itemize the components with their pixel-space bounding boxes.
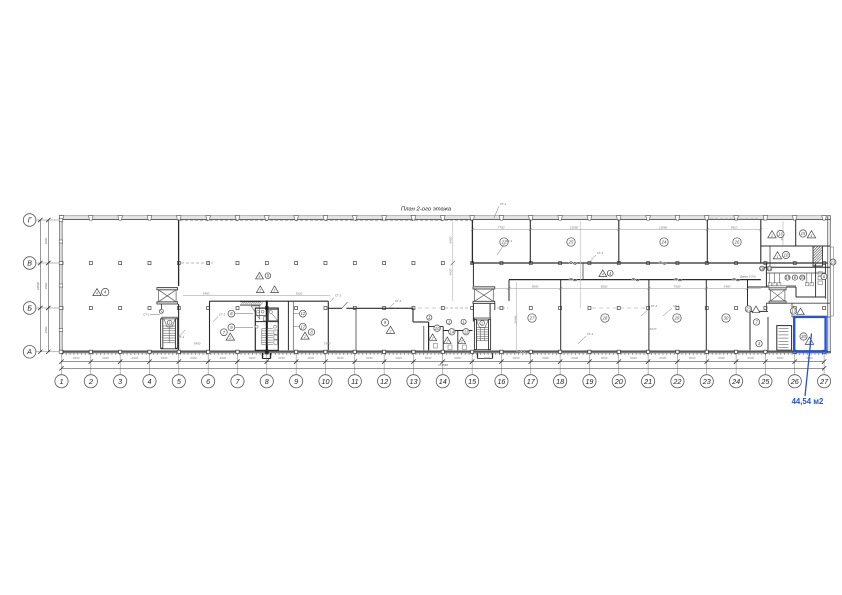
svg-text:9: 9 bbox=[294, 377, 298, 386]
svg-text:17: 17 bbox=[300, 324, 305, 329]
svg-text:6030: 6030 bbox=[718, 356, 725, 360]
svg-text:30: 30 bbox=[801, 334, 806, 339]
svg-text:20: 20 bbox=[614, 377, 623, 386]
svg-text:2: 2 bbox=[273, 289, 276, 293]
svg-text:4: 4 bbox=[602, 273, 604, 277]
svg-text:9270: 9270 bbox=[650, 327, 657, 331]
svg-text:15: 15 bbox=[801, 231, 806, 236]
svg-text:4: 4 bbox=[147, 377, 151, 386]
svg-text:6030: 6030 bbox=[660, 356, 667, 360]
svg-text:План 2-ого этажа: План 2-ого этажа bbox=[401, 207, 452, 213]
svg-text:9000: 9000 bbox=[532, 284, 539, 288]
svg-text:28: 28 bbox=[602, 316, 608, 321]
svg-text:6030: 6030 bbox=[572, 356, 579, 360]
svg-text:23: 23 bbox=[702, 377, 711, 386]
svg-text:12: 12 bbox=[300, 311, 305, 316]
svg-text:6420: 6420 bbox=[249, 356, 256, 360]
svg-text:6030: 6030 bbox=[366, 356, 373, 360]
svg-text:5480: 5480 bbox=[724, 284, 731, 288]
svg-text:6030: 6030 bbox=[601, 356, 608, 360]
svg-text:9000: 9000 bbox=[601, 284, 608, 288]
svg-text:6030: 6030 bbox=[777, 356, 784, 360]
svg-text:1: 1 bbox=[811, 234, 813, 238]
svg-text:157660: 157660 bbox=[438, 363, 448, 367]
svg-text:4500: 4500 bbox=[44, 282, 48, 289]
svg-text:6460: 6460 bbox=[449, 236, 453, 243]
svg-text:25: 25 bbox=[760, 377, 770, 386]
svg-text:10: 10 bbox=[321, 377, 329, 386]
svg-text:6490: 6490 bbox=[73, 356, 80, 360]
svg-text:20: 20 bbox=[799, 275, 805, 280]
svg-text:13: 13 bbox=[409, 377, 417, 386]
svg-text:7540: 7540 bbox=[324, 342, 331, 346]
svg-text:4: 4 bbox=[96, 292, 98, 296]
svg-text:СТ-1: СТ-1 bbox=[651, 304, 658, 308]
svg-text:19: 19 bbox=[785, 275, 790, 280]
svg-text:9910: 9910 bbox=[731, 225, 738, 229]
svg-text:44,54 м2: 44,54 м2 bbox=[792, 397, 824, 406]
svg-text:26: 26 bbox=[734, 240, 740, 245]
svg-text:5450: 5450 bbox=[203, 291, 210, 295]
svg-text:СТ-1: СТ-1 bbox=[587, 332, 594, 336]
svg-text:4500: 4500 bbox=[44, 237, 48, 244]
svg-text:21: 21 bbox=[766, 266, 772, 271]
svg-text:6030: 6030 bbox=[220, 356, 227, 360]
svg-text:8: 8 bbox=[265, 377, 269, 386]
svg-text:6030: 6030 bbox=[132, 356, 139, 360]
svg-text:24: 24 bbox=[661, 240, 667, 245]
svg-text:2: 2 bbox=[460, 340, 463, 344]
svg-text:31440: 31440 bbox=[514, 315, 518, 324]
svg-text:6420: 6420 bbox=[396, 356, 403, 360]
svg-text:22: 22 bbox=[672, 377, 681, 386]
svg-text:30: 30 bbox=[724, 316, 729, 321]
svg-text:13: 13 bbox=[831, 260, 836, 265]
svg-text:26: 26 bbox=[790, 377, 799, 386]
svg-text:СТ-1: СТ-1 bbox=[506, 239, 513, 243]
svg-text:6030: 6030 bbox=[542, 356, 549, 360]
svg-text:Двери 5-27к: Двери 5-27к bbox=[739, 275, 756, 279]
svg-text:1: 1 bbox=[428, 315, 430, 320]
svg-text:В: В bbox=[27, 260, 32, 267]
svg-text:13060: 13060 bbox=[570, 225, 579, 229]
svg-text:6490: 6490 bbox=[161, 356, 168, 360]
svg-text:2: 2 bbox=[480, 322, 483, 326]
svg-text:1: 1 bbox=[777, 255, 779, 259]
svg-text:4420: 4420 bbox=[449, 268, 453, 275]
svg-text:6030: 6030 bbox=[513, 356, 520, 360]
svg-text:13060: 13060 bbox=[659, 225, 668, 229]
svg-text:СТ-1: СТ-1 bbox=[178, 335, 185, 339]
svg-text:2: 2 bbox=[303, 335, 306, 339]
svg-text:10: 10 bbox=[435, 326, 440, 331]
svg-text:5450: 5450 bbox=[194, 342, 201, 346]
svg-text:6030: 6030 bbox=[190, 356, 197, 360]
svg-text:15: 15 bbox=[468, 377, 477, 386]
svg-text:6030: 6030 bbox=[454, 356, 461, 360]
svg-text:6030: 6030 bbox=[337, 356, 344, 360]
svg-text:25: 25 bbox=[568, 240, 574, 245]
svg-text:6030: 6030 bbox=[748, 356, 755, 360]
svg-text:6030: 6030 bbox=[278, 356, 285, 360]
svg-text:14: 14 bbox=[449, 329, 454, 334]
svg-text:СТ-2: СТ-2 bbox=[219, 313, 226, 317]
svg-text:2: 2 bbox=[88, 377, 93, 386]
svg-text:6030: 6030 bbox=[102, 356, 109, 360]
svg-text:17: 17 bbox=[527, 377, 536, 386]
svg-text:10: 10 bbox=[784, 253, 789, 258]
svg-text:5: 5 bbox=[259, 275, 261, 279]
svg-text:16: 16 bbox=[497, 377, 505, 386]
svg-text:3: 3 bbox=[118, 377, 122, 386]
svg-text:6030: 6030 bbox=[484, 356, 491, 360]
svg-text:2: 2 bbox=[389, 329, 392, 333]
svg-text:6030: 6030 bbox=[308, 356, 315, 360]
svg-text:14: 14 bbox=[439, 377, 447, 386]
svg-text:1: 1 bbox=[448, 319, 450, 324]
svg-text:27: 27 bbox=[819, 377, 829, 386]
svg-text:19: 19 bbox=[585, 377, 593, 386]
svg-text:Б: Б bbox=[27, 305, 32, 312]
svg-text:18: 18 bbox=[556, 377, 564, 386]
svg-text:29: 29 bbox=[674, 316, 680, 321]
svg-text:СТ-1: СТ-1 bbox=[143, 313, 150, 317]
svg-text:6030: 6030 bbox=[630, 356, 637, 360]
svg-text:18: 18 bbox=[760, 266, 765, 271]
svg-text:16: 16 bbox=[778, 232, 783, 237]
svg-text:3520: 3520 bbox=[296, 291, 303, 295]
svg-text:СТ-2: СТ-2 bbox=[673, 304, 680, 308]
svg-text:7500: 7500 bbox=[674, 284, 681, 288]
svg-text:12: 12 bbox=[380, 377, 388, 386]
svg-text:23: 23 bbox=[745, 307, 751, 312]
svg-text:СТ-1: СТ-1 bbox=[500, 202, 507, 206]
svg-text:А: А bbox=[26, 349, 32, 356]
svg-text:СТ-1: СТ-1 bbox=[597, 251, 604, 255]
svg-text:1: 1 bbox=[462, 319, 464, 324]
svg-text:11: 11 bbox=[464, 329, 468, 334]
svg-text:6030: 6030 bbox=[425, 356, 432, 360]
svg-text:2: 2 bbox=[258, 289, 261, 293]
svg-text:1: 1 bbox=[771, 234, 773, 238]
svg-text:6: 6 bbox=[206, 377, 210, 386]
svg-text:24: 24 bbox=[731, 377, 740, 386]
svg-text:4500: 4500 bbox=[44, 326, 48, 333]
svg-text:1: 1 bbox=[169, 321, 171, 325]
svg-text:СТ-1: СТ-1 bbox=[395, 299, 402, 303]
svg-text:13: 13 bbox=[791, 309, 796, 314]
svg-text:2: 2 bbox=[445, 340, 448, 344]
svg-text:22500: 22500 bbox=[36, 282, 40, 291]
svg-text:27: 27 bbox=[529, 316, 535, 321]
svg-text:6030: 6030 bbox=[689, 356, 696, 360]
svg-text:СТ-2: СТ-2 bbox=[335, 294, 342, 298]
svg-text:21: 21 bbox=[643, 377, 652, 386]
svg-text:7750: 7750 bbox=[498, 225, 505, 229]
svg-text:1: 1 bbox=[60, 377, 64, 386]
svg-text:2: 2 bbox=[228, 336, 231, 340]
svg-text:2: 2 bbox=[431, 337, 434, 341]
svg-text:11: 11 bbox=[351, 377, 358, 386]
